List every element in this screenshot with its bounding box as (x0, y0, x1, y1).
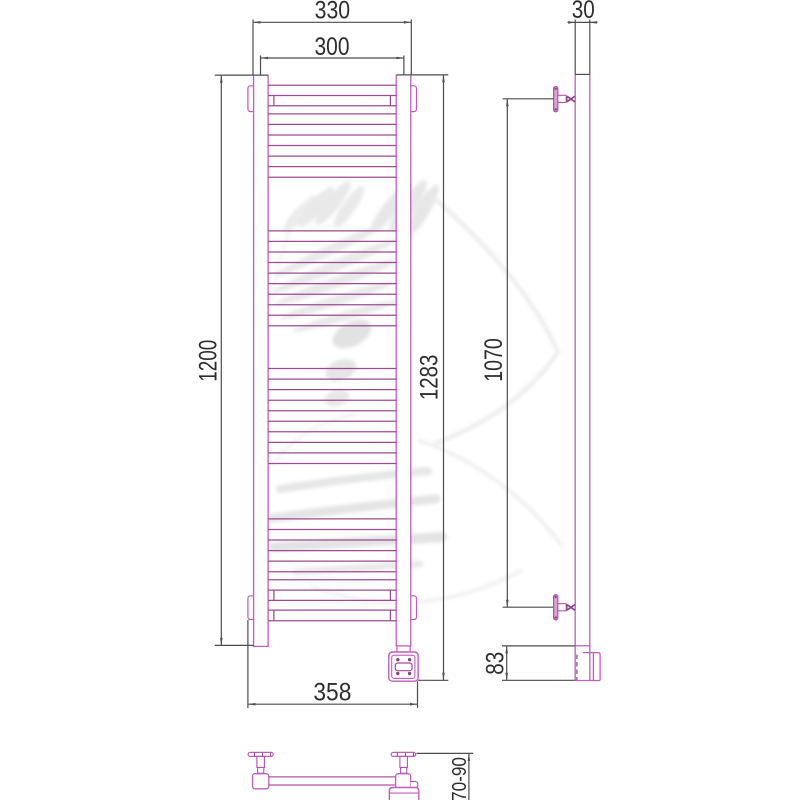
svg-text:1200: 1200 (195, 340, 223, 382)
svg-text:330: 330 (315, 0, 351, 25)
svg-text:1070: 1070 (480, 338, 508, 382)
svg-text:70-90: 70-90 (449, 757, 471, 800)
svg-text:300: 300 (315, 33, 350, 61)
svg-text:83: 83 (482, 652, 510, 675)
svg-text:358: 358 (313, 679, 351, 707)
svg-text:30: 30 (572, 0, 595, 24)
svg-text:1283: 1283 (416, 355, 444, 401)
